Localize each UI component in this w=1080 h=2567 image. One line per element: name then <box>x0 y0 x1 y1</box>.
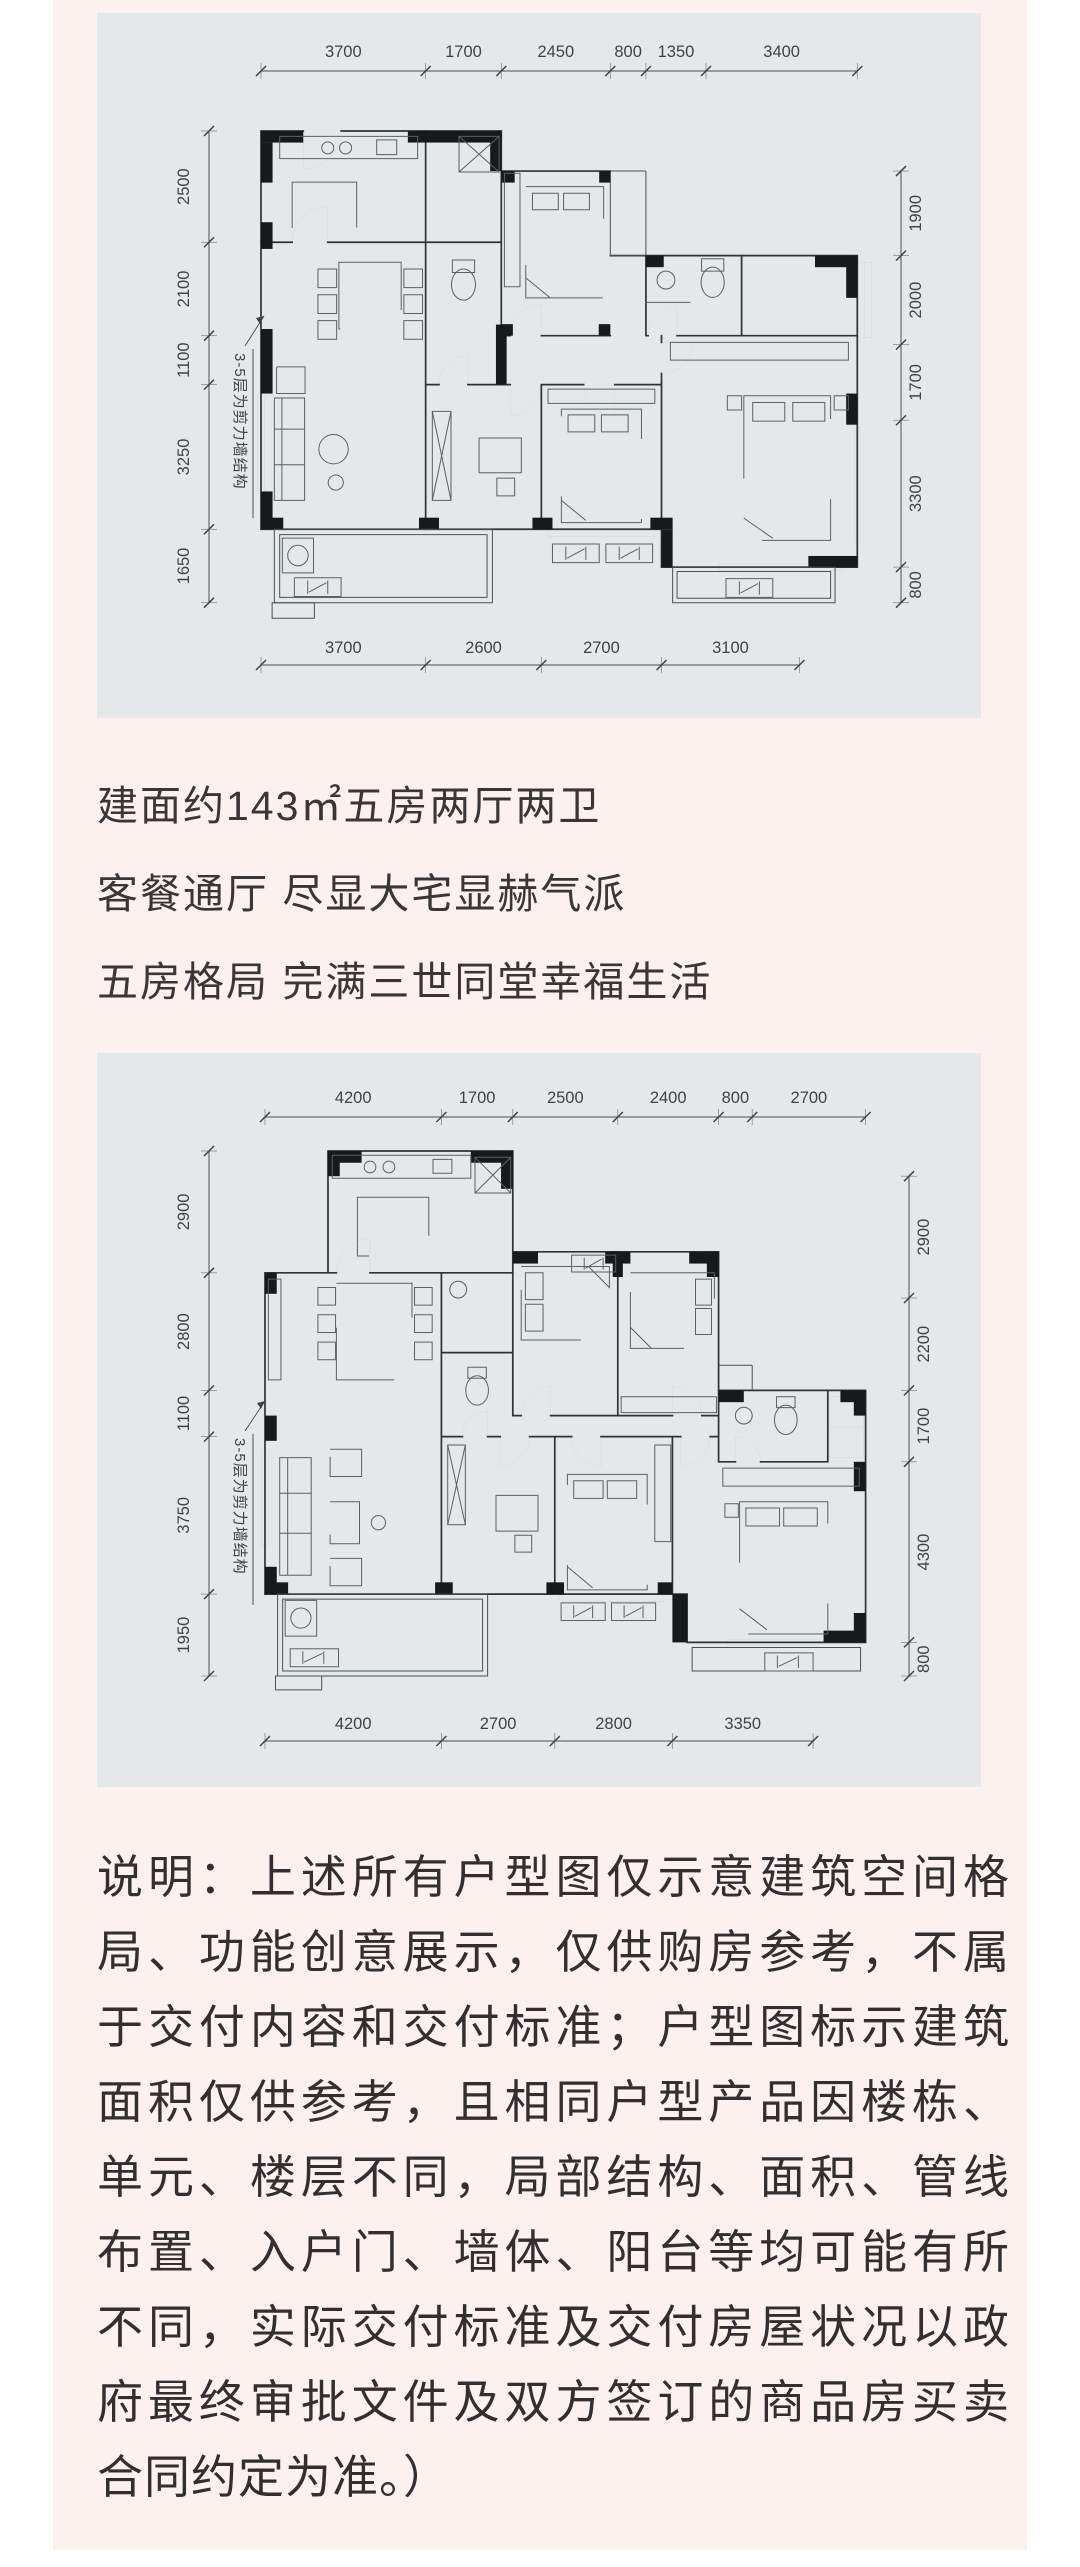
svg-text:2900: 2900 <box>915 1219 933 1256</box>
page: { "colors": { "page_bg": "#ffffff", "con… <box>0 0 1080 2567</box>
washing-machine-icon <box>282 538 313 573</box>
disclaimer-line: 布置、入户门、墙体、阳台等均可能有所 <box>97 2215 1010 2290</box>
svg-text:3700: 3700 <box>325 639 362 657</box>
plan1-exterior-walls <box>261 131 857 567</box>
plan2-window-tags <box>290 1255 813 1671</box>
wardrobe <box>548 389 655 403</box>
window-tag-icon <box>612 1603 656 1621</box>
window-tag-icon <box>294 578 341 597</box>
plan1-structure-note: 3-5层为剪力墙结构 <box>231 316 264 518</box>
wardrobe <box>621 1397 716 1413</box>
headline-line: 建面约143㎡五房两厅两卫 <box>97 786 1010 827</box>
plan2-furniture <box>268 1155 859 1636</box>
plan1-furniture <box>274 136 848 573</box>
plan2-shear-walls <box>265 1151 866 1642</box>
window-tag-icon <box>765 1653 813 1671</box>
svg-text:2800: 2800 <box>175 1313 193 1350</box>
dining-table <box>336 1283 412 1380</box>
disclaimer-line: 面积仅供参考，且相同户型产品因楼栋、 <box>97 2065 1010 2140</box>
svg-text:800: 800 <box>915 1645 933 1673</box>
plan2-drawing <box>262 1151 866 1690</box>
svg-text:1700: 1700 <box>907 364 925 401</box>
svg-text:4200: 4200 <box>335 1715 372 1733</box>
svg-text:2200: 2200 <box>915 1326 933 1363</box>
plan2-structure-note: 3-5层为剪力墙结构 <box>231 1401 265 1605</box>
sofa <box>274 398 304 500</box>
svg-text:3350: 3350 <box>724 1715 761 1733</box>
disclaimer-line: 说明：上述所有户型图仅示意建筑空间格 <box>97 1840 1010 1915</box>
structure-note-label: 3-5层为剪力墙结构 <box>231 1438 248 1575</box>
wardrobe <box>504 173 520 286</box>
svg-text:3700: 3700 <box>325 43 362 61</box>
svg-text:2600: 2600 <box>465 639 502 657</box>
stove-burner-icon <box>383 1161 395 1173</box>
wardrobe <box>723 1468 860 1486</box>
leader-arrow-icon <box>256 316 264 324</box>
stove-burner-icon <box>364 1161 376 1173</box>
svg-text:1100: 1100 <box>175 1396 193 1431</box>
plan1-windows <box>258 262 872 570</box>
content-background: 3700170024508001350340037002600270031002… <box>53 0 1027 2550</box>
bed <box>744 396 831 541</box>
floor-plan-1: 3700170024508001350340037002600270031002… <box>97 13 981 718</box>
svg-text:3750: 3750 <box>175 1497 193 1534</box>
svg-text:1100: 1100 <box>175 342 193 377</box>
svg-text:1650: 1650 <box>175 548 193 585</box>
structure-note-label: 3-5层为剪力墙结构 <box>231 353 248 490</box>
svg-text:3400: 3400 <box>763 43 800 61</box>
svg-text:2700: 2700 <box>583 639 620 657</box>
svg-text:1700: 1700 <box>915 1408 933 1445</box>
headline-line: 客餐通厅 尽显大宅显赫气派 <box>97 874 1010 915</box>
plan2-interior-walls <box>328 1252 828 1594</box>
window-tag-icon <box>726 579 773 598</box>
svg-text:2800: 2800 <box>595 1715 632 1733</box>
disclaimer-block: 说明：上述所有户型图仅示意建筑空间格 局、功能创意展示，仅供购房参考，不属 于交… <box>97 1840 1010 2515</box>
svg-text:2100: 2100 <box>175 271 193 308</box>
sink-icon <box>657 271 675 289</box>
plan1-window-tags <box>294 544 772 597</box>
plan2-exterior-walls <box>265 1151 866 1642</box>
stove-burner-icon <box>340 142 352 154</box>
svg-text:2900: 2900 <box>175 1194 193 1231</box>
plan1-shear-walls <box>261 131 857 567</box>
svg-text:1900: 1900 <box>907 195 925 232</box>
sink-icon <box>735 1407 752 1424</box>
tea-table <box>330 1502 359 1544</box>
washing-machine-icon <box>285 1600 317 1636</box>
plan1-drawing <box>258 131 872 618</box>
tea-table <box>319 434 348 463</box>
svg-text:2700: 2700 <box>791 1089 828 1107</box>
svg-text:800: 800 <box>907 571 925 599</box>
plan2-dimensions: 4200170025002400800270042002700280033502… <box>175 1089 933 1749</box>
svg-text:2450: 2450 <box>537 43 574 61</box>
svg-text:3300: 3300 <box>907 475 925 512</box>
svg-text:3100: 3100 <box>712 639 749 657</box>
svg-text:2400: 2400 <box>650 1089 687 1107</box>
disclaimer-line: 局、功能创意展示，仅供购房参考，不属 <box>97 1915 1010 1990</box>
disclaimer-line: 府最终审批文件及双方签订的商品房买卖 <box>97 2365 1010 2440</box>
svg-text:4200: 4200 <box>335 1089 372 1107</box>
leader-arrow-icon <box>257 1401 265 1409</box>
plan1-balconies <box>272 529 835 618</box>
window-tag-icon <box>552 544 599 563</box>
headline-block: 建面约143㎡五房两厅两卫 客餐通厅 尽显大宅显赫气派 五房格局 完满三世同堂幸… <box>97 786 1010 1050</box>
svg-text:2500: 2500 <box>547 1089 584 1107</box>
plan1-doors <box>292 131 693 416</box>
bed <box>526 187 604 298</box>
toilet-icon <box>774 1405 797 1434</box>
svg-text:3250: 3250 <box>175 439 193 476</box>
plan1-interior-walls <box>261 131 857 529</box>
svg-text:1700: 1700 <box>445 43 482 61</box>
bed <box>521 1267 609 1341</box>
desk <box>479 438 521 473</box>
sink-icon <box>450 1281 467 1298</box>
cabinet <box>268 1279 281 1380</box>
window-tag-icon <box>606 544 653 563</box>
headline-line: 五房格局 完满三世同堂幸福生活 <box>97 962 1010 1003</box>
toilet-icon <box>701 267 724 297</box>
dining-table <box>339 262 401 329</box>
svg-text:2700: 2700 <box>480 1715 517 1733</box>
disclaimer-line: 于交付内容和交付标准；户型图标示建筑 <box>97 1990 1010 2065</box>
svg-text:1350: 1350 <box>658 43 695 61</box>
svg-text:2000: 2000 <box>907 282 925 319</box>
toilet-icon <box>466 1376 489 1405</box>
wardrobe <box>655 1445 671 1542</box>
floor-plan-panel-2: 4200170025002400800270042002700280033502… <box>97 1053 981 1787</box>
disclaimer-line: 不同，实际交付标准及交付房屋状况以政 <box>97 2290 1010 2365</box>
svg-text:800: 800 <box>722 1089 750 1107</box>
svg-text:1700: 1700 <box>459 1089 496 1107</box>
stove-burner-icon <box>322 142 334 154</box>
disclaimer-line: 单元、楼层不同，局部结构、面积、管线 <box>97 2140 1010 2215</box>
svg-text:2500: 2500 <box>175 168 193 205</box>
bed <box>630 1273 714 1349</box>
toilet-icon <box>451 269 475 300</box>
plan2-windows <box>262 1397 864 1646</box>
sofa <box>280 1458 312 1576</box>
floor-plan-2: 4200170025002400800270042002700280033502… <box>97 1053 981 1787</box>
window-tag-icon <box>290 1649 338 1667</box>
svg-text:800: 800 <box>614 43 642 61</box>
svg-text:4300: 4300 <box>915 1534 933 1571</box>
desk <box>496 1495 538 1531</box>
window-tag-icon <box>561 1603 605 1621</box>
disclaimer-line: 合同约定为准。） <box>97 2440 1010 2515</box>
svg-text:1950: 1950 <box>175 1617 193 1654</box>
wardrobe <box>670 342 848 360</box>
floor-plan-panel-1: 3700170024508001350340037002600270031002… <box>97 13 981 718</box>
